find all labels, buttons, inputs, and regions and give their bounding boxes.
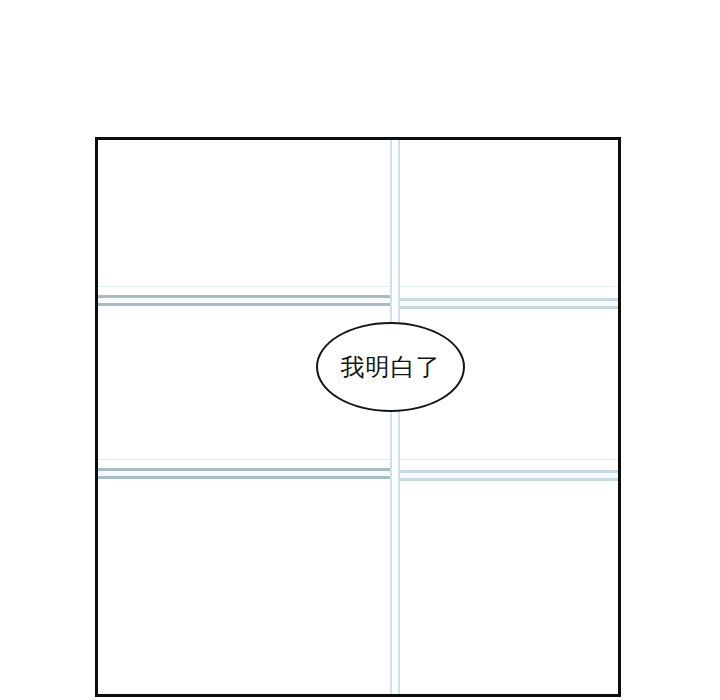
window-frame-vertical-bar [390, 140, 400, 694]
window-frame-horizontal-bar-upper-left [98, 295, 390, 306]
speech-bubble: 我明白了 [316, 322, 465, 412]
window-frame-faint-line-upper [98, 286, 618, 287]
window-frame-horizontal-bar-lower-right [400, 470, 618, 481]
window-frame-faint-line-lower [98, 459, 618, 460]
comic-panel [95, 137, 621, 697]
speech-bubble-text: 我明白了 [341, 355, 441, 379]
window-frame-horizontal-bar-lower-left [98, 468, 390, 479]
window-frame-horizontal-bar-upper-right [400, 298, 618, 309]
